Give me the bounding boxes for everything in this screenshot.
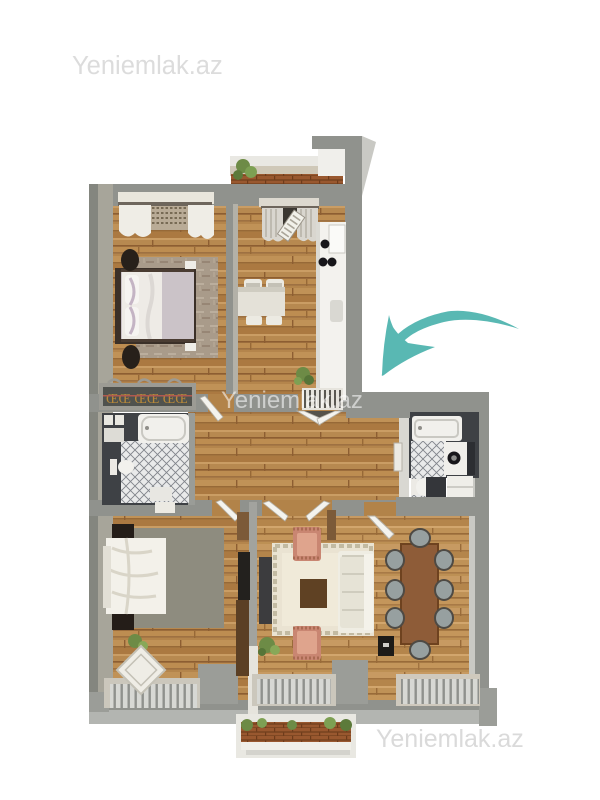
svg-text:Yeniemlak.az: Yeniemlak.az xyxy=(221,387,363,414)
svg-text:ŒŒ ŒŒ ŒŒ: ŒŒ ŒŒ ŒŒ xyxy=(106,392,188,407)
svg-text:Yeniemlak.az: Yeniemlak.az xyxy=(376,725,524,753)
svg-text:Yeniemlak.az: Yeniemlak.az xyxy=(72,52,223,80)
